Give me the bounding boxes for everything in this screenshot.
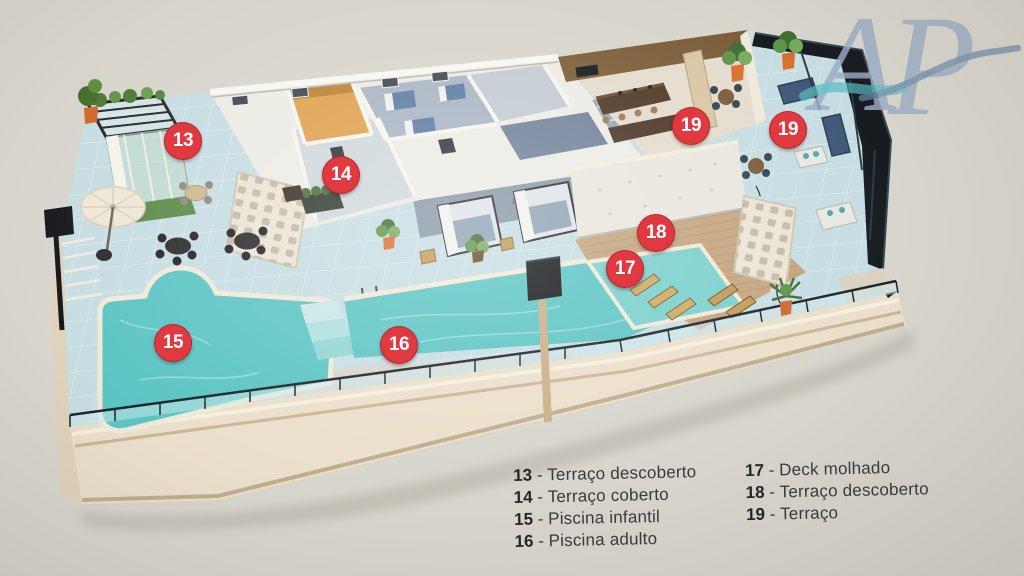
legend-item-13: 13 - Terraço descoberto bbox=[513, 461, 697, 487]
cobogo-screen-right bbox=[734, 196, 796, 286]
legend-item-18: 18 - Terraço descoberto bbox=[745, 478, 929, 504]
legend-item-19: 19 - Terraço bbox=[746, 500, 930, 526]
screenshot-root: A P 13 14 15 16 17 18 19 19 13 - Terraço… bbox=[0, 0, 1024, 576]
logo-letter-a: A bbox=[804, 0, 897, 140]
daybed bbox=[514, 182, 578, 242]
legend-item-16: 16 - Piscina adulto bbox=[514, 527, 698, 553]
brand-logo: A P bbox=[804, 0, 1018, 146]
legend-column-1: 13 - Terraço descoberto 14 - Terraço cob… bbox=[513, 461, 698, 553]
grill bbox=[96, 249, 112, 261]
sideboard bbox=[282, 185, 304, 202]
legend-column-2: 17 - Deck molhado 18 - Terraço descobert… bbox=[745, 456, 929, 526]
